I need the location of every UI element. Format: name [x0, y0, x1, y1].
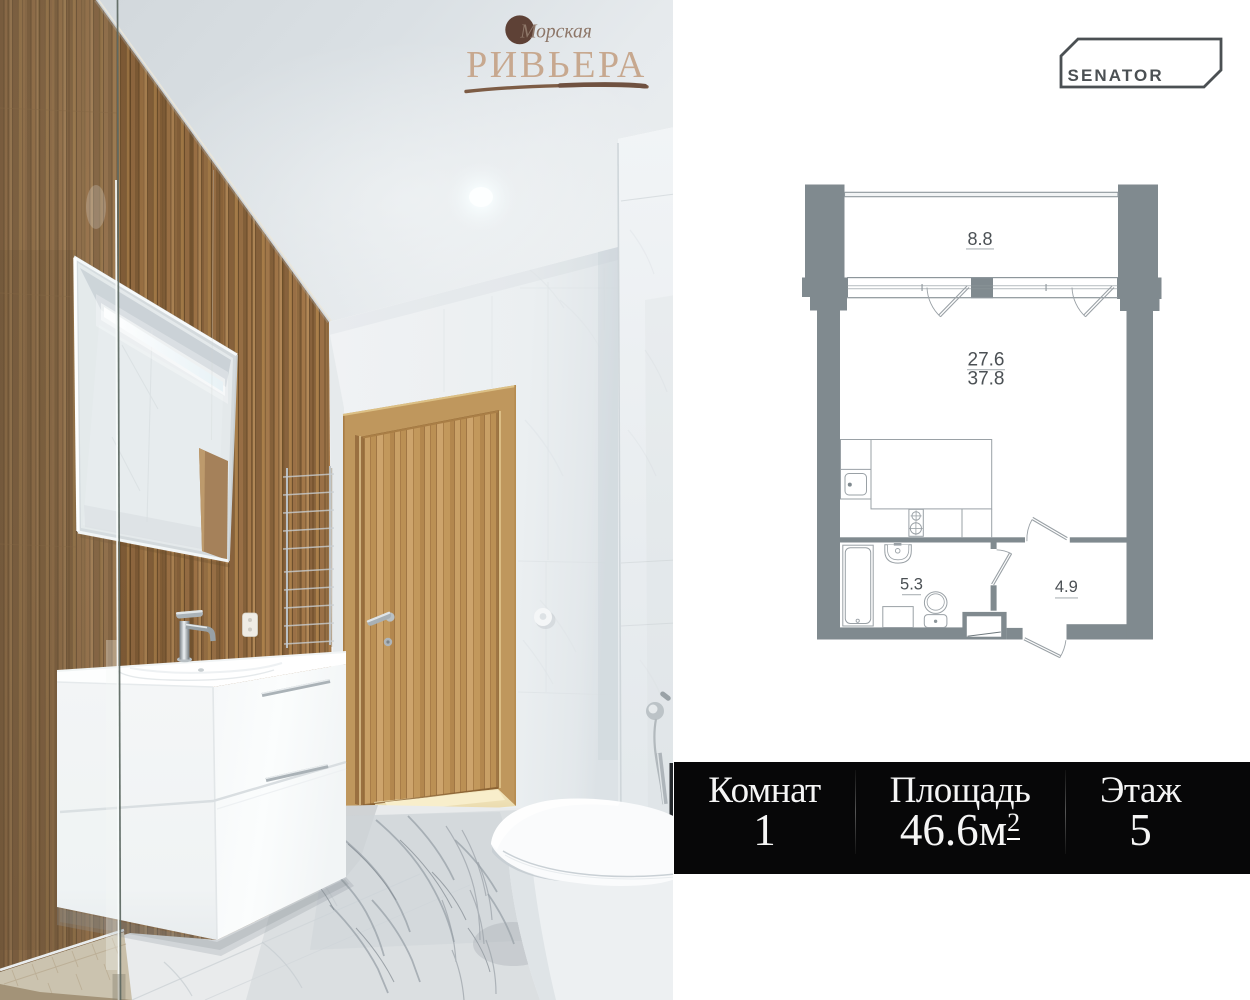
svg-text:SENATOR: SENATOR: [1068, 66, 1164, 85]
svg-text:4.9: 4.9: [1055, 578, 1078, 596]
svg-text:5.3: 5.3: [900, 576, 923, 594]
svg-text:8.8: 8.8: [967, 229, 992, 249]
svg-text:27.6: 27.6: [968, 350, 1005, 371]
svg-text:37.8: 37.8: [968, 369, 1005, 390]
svg-text:РИВЬЕРА: РИВЬЕРА: [466, 44, 647, 86]
svg-text:Морская: Морская: [519, 22, 592, 43]
